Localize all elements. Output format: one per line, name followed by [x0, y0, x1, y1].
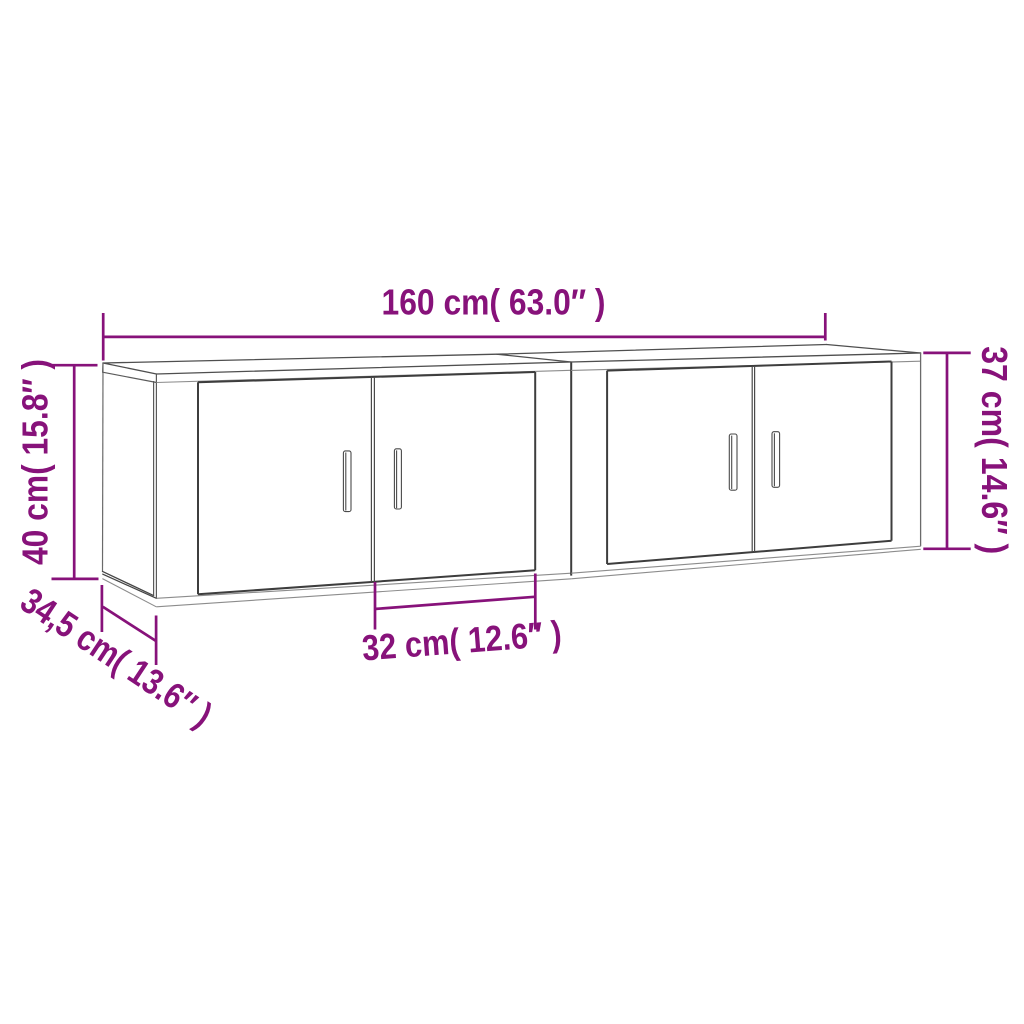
svg-text:40 cm( 15.8″ ): 40 cm( 15.8″ ) [15, 359, 56, 565]
svg-text:37 cm( 14.6″ ): 37 cm( 14.6″ ) [974, 346, 1015, 554]
svg-text:160 cm( 63.0″ ): 160 cm( 63.0″ ) [382, 282, 606, 323]
